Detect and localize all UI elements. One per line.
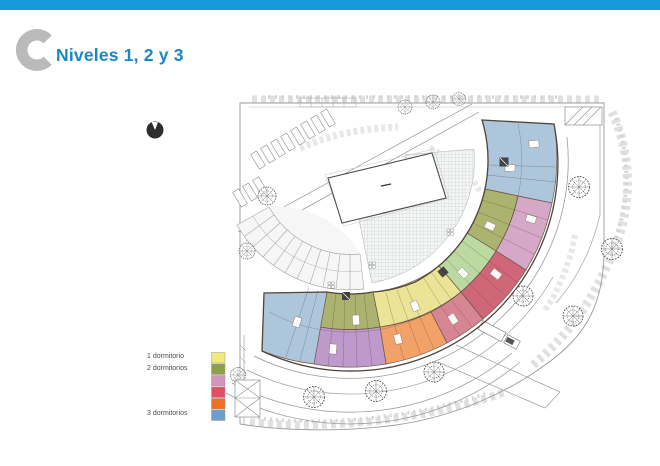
legend-swatches — [211, 352, 227, 426]
legend-swatch-olive — [212, 364, 226, 375]
legend-swatch-yellow — [212, 353, 226, 364]
legend: 1 dormitorio 2 dormitorios 3 dormitorios — [147, 350, 257, 428]
legend-swatch-blue — [212, 410, 226, 421]
legend-swatch-orange — [212, 399, 226, 410]
garden-structures — [478, 320, 520, 349]
legend-label-2-dormitorios: 2 dormitorios — [147, 364, 187, 373]
legend-label-1-dormitorio: 1 dormitorio — [147, 352, 184, 361]
company-logo-icon — [13, 25, 61, 73]
logo-ring — [16, 29, 52, 71]
legend-swatch-red — [212, 387, 226, 398]
legend-label-3-dormitorios: 3 dormitorios — [147, 409, 187, 418]
north-indicator-icon — [147, 122, 164, 139]
page-title: Niveles 1, 2 y 3 — [56, 45, 184, 66]
legend-swatch-pink — [212, 376, 226, 387]
unit-purple — [314, 327, 386, 367]
header-bar — [0, 0, 660, 10]
